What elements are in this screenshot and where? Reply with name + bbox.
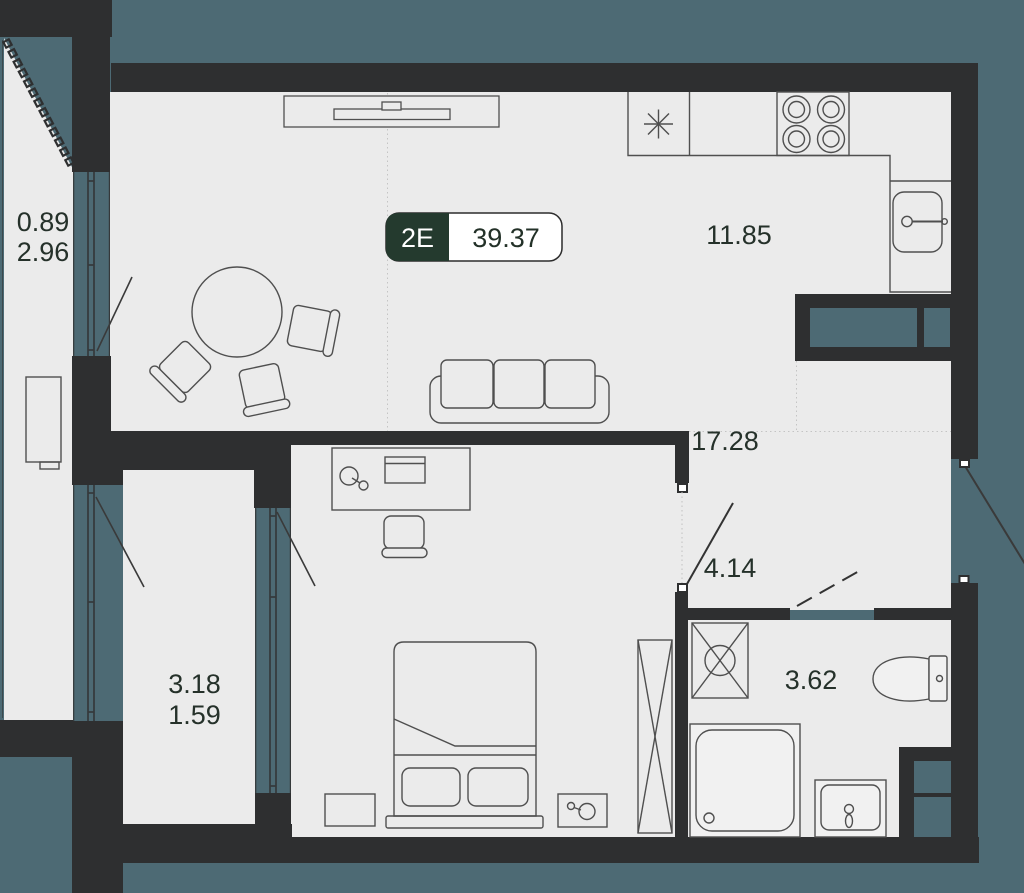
svg-text:3.18: 3.18 [168, 669, 221, 699]
svg-text:11.85: 11.85 [706, 220, 772, 250]
svg-text:2.96: 2.96 [17, 237, 70, 267]
svg-text:0.89: 0.89 [17, 207, 70, 237]
svg-text:1.59: 1.59 [168, 700, 221, 730]
svg-text:2E: 2E [401, 223, 434, 253]
svg-text:4.14: 4.14 [704, 553, 757, 583]
svg-text:3.62: 3.62 [785, 665, 838, 695]
svg-text:17.28: 17.28 [691, 426, 759, 456]
svg-text:39.37: 39.37 [472, 223, 540, 253]
